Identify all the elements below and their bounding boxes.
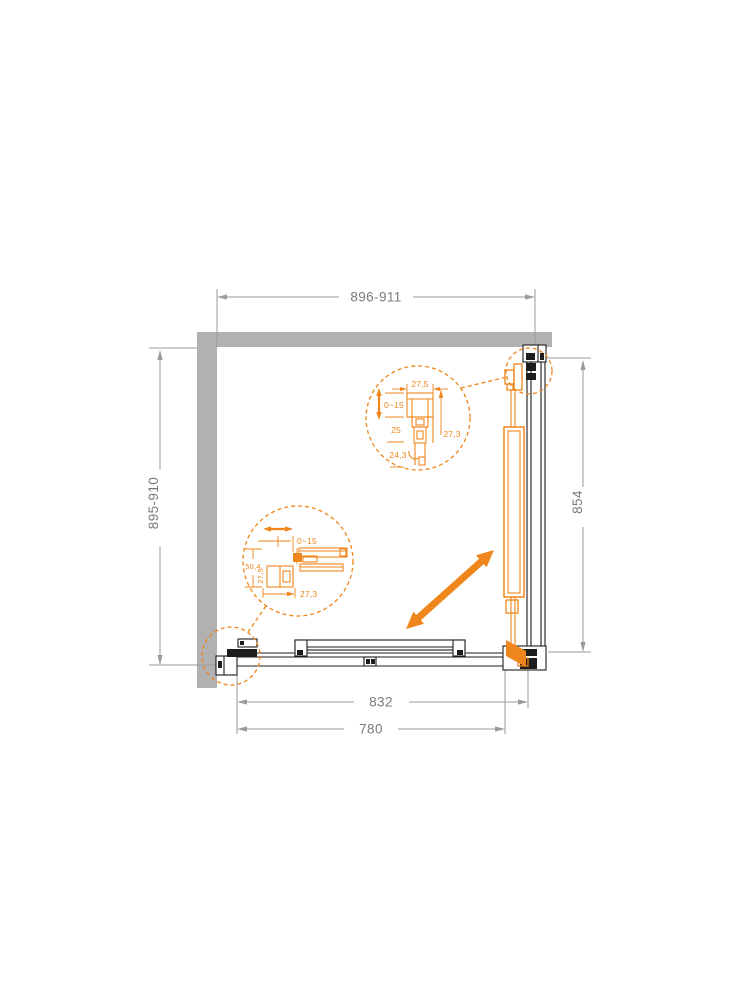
label-bottom-outer: 832 [369,695,393,710]
detail-callouts [202,348,552,685]
detail-leader-left [248,606,266,632]
bottom-track [216,653,546,666]
label-detail-top-depth-bottom: 24,3 [389,450,406,460]
technical-drawing-canvas: 896-911 895-910 854 832 780 27,5 0~15 25… [0,0,750,1000]
label-detail-wall-depth: 27,3 [300,589,317,599]
label-detail-top-depth-mid: 25 [391,425,401,435]
roller-carriage-bottom [506,600,528,667]
adjust-vertical-arrow-icon [376,388,382,420]
fixed-panel-right [527,362,545,668]
label-depth-left: 895-910 [146,477,161,529]
slide-direction-arrow-icon [406,550,494,629]
sliding-door-right-highlighted [504,364,528,667]
detail-top-profile-drawing [376,384,448,467]
door-panel-right [504,427,524,597]
shower-enclosure-plan-svg: 896-911 895-910 854 832 780 27,5 0~15 25… [0,0,750,1000]
label-height-right: 854 [570,490,585,514]
label-bottom-inner: 780 [359,722,383,737]
label-detail-wall-adjustment: 0~15 [297,536,317,546]
roller-carriage-top [505,364,522,390]
wall-left [197,332,217,688]
adjust-horizontal-arrow-icon [263,526,293,532]
label-detail-top-depth-side: 27,3 [443,429,460,439]
label-width-top: 896-911 [350,290,401,305]
sliding-door-bottom [295,640,465,656]
label-detail-top-adjustment: 0~15 [384,400,404,410]
wall-profile-bottom-left [216,639,257,675]
label-detail-wall-width: 27,5 [256,568,265,583]
wall-profile-top-right [523,345,546,380]
wall-top [197,332,552,347]
detail-leader-top [461,377,507,388]
label-detail-top-width: 27,5 [411,379,428,389]
bottom-guide-bracket [364,657,376,666]
